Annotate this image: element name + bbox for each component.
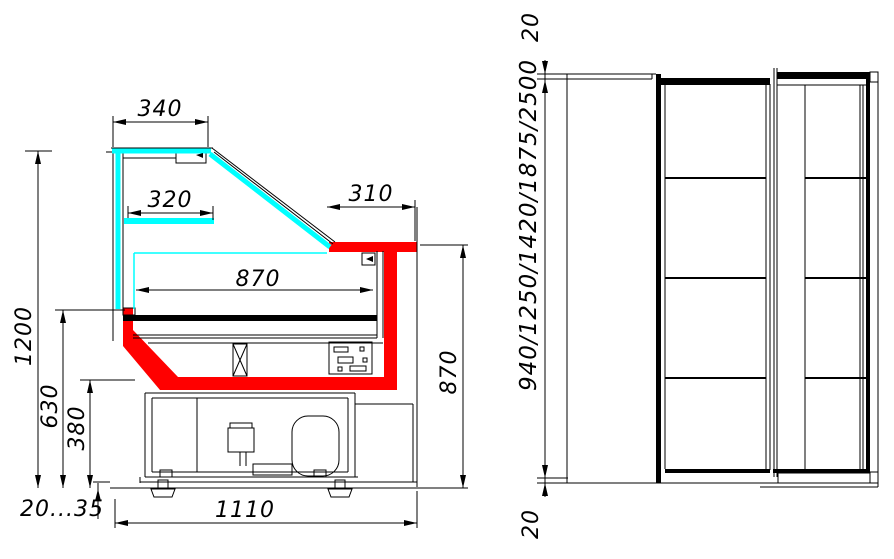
technical-drawing: 340 320 310 870 1200 630 380 870 20...35… bbox=[0, 0, 894, 559]
dimension-lines bbox=[25, 60, 568, 528]
dim-bottom-overhang-label: 20 bbox=[519, 509, 544, 539]
dim-total-depth-label: 1110 bbox=[215, 498, 275, 523]
front-view bbox=[567, 68, 878, 487]
dim-foot-adjust-label: 20...35 bbox=[20, 497, 104, 522]
dim-shelf-width-label: 320 bbox=[148, 188, 193, 213]
dimension-lines-group bbox=[25, 60, 568, 528]
glass-panels bbox=[112, 150, 330, 309]
dimension-labels: 340 320 310 870 1200 630 380 870 20...35… bbox=[12, 12, 544, 539]
technical-drawing-page: 340 320 310 870 1200 630 380 870 20...35… bbox=[0, 0, 894, 559]
display-deck-band bbox=[123, 315, 377, 321]
dim-glass-bottom-height-label: 630 bbox=[38, 384, 63, 429]
dim-basin-height-label: 380 bbox=[65, 406, 90, 451]
dim-length-options-label: 940/1250/1420/1875/2500 bbox=[516, 59, 542, 391]
dim-top-overhang-label: 20 bbox=[519, 12, 544, 42]
dim-total-height-label: 1200 bbox=[12, 306, 37, 366]
dim-canopy-width-label: 340 bbox=[138, 97, 183, 122]
glass-inner-line bbox=[134, 253, 327, 309]
compressor-outline bbox=[292, 416, 339, 476]
dim-worktop-depth-label: 310 bbox=[349, 182, 394, 207]
dim-display-width-label: 870 bbox=[236, 267, 281, 292]
dim-worktop-height-label: 870 bbox=[437, 350, 462, 395]
